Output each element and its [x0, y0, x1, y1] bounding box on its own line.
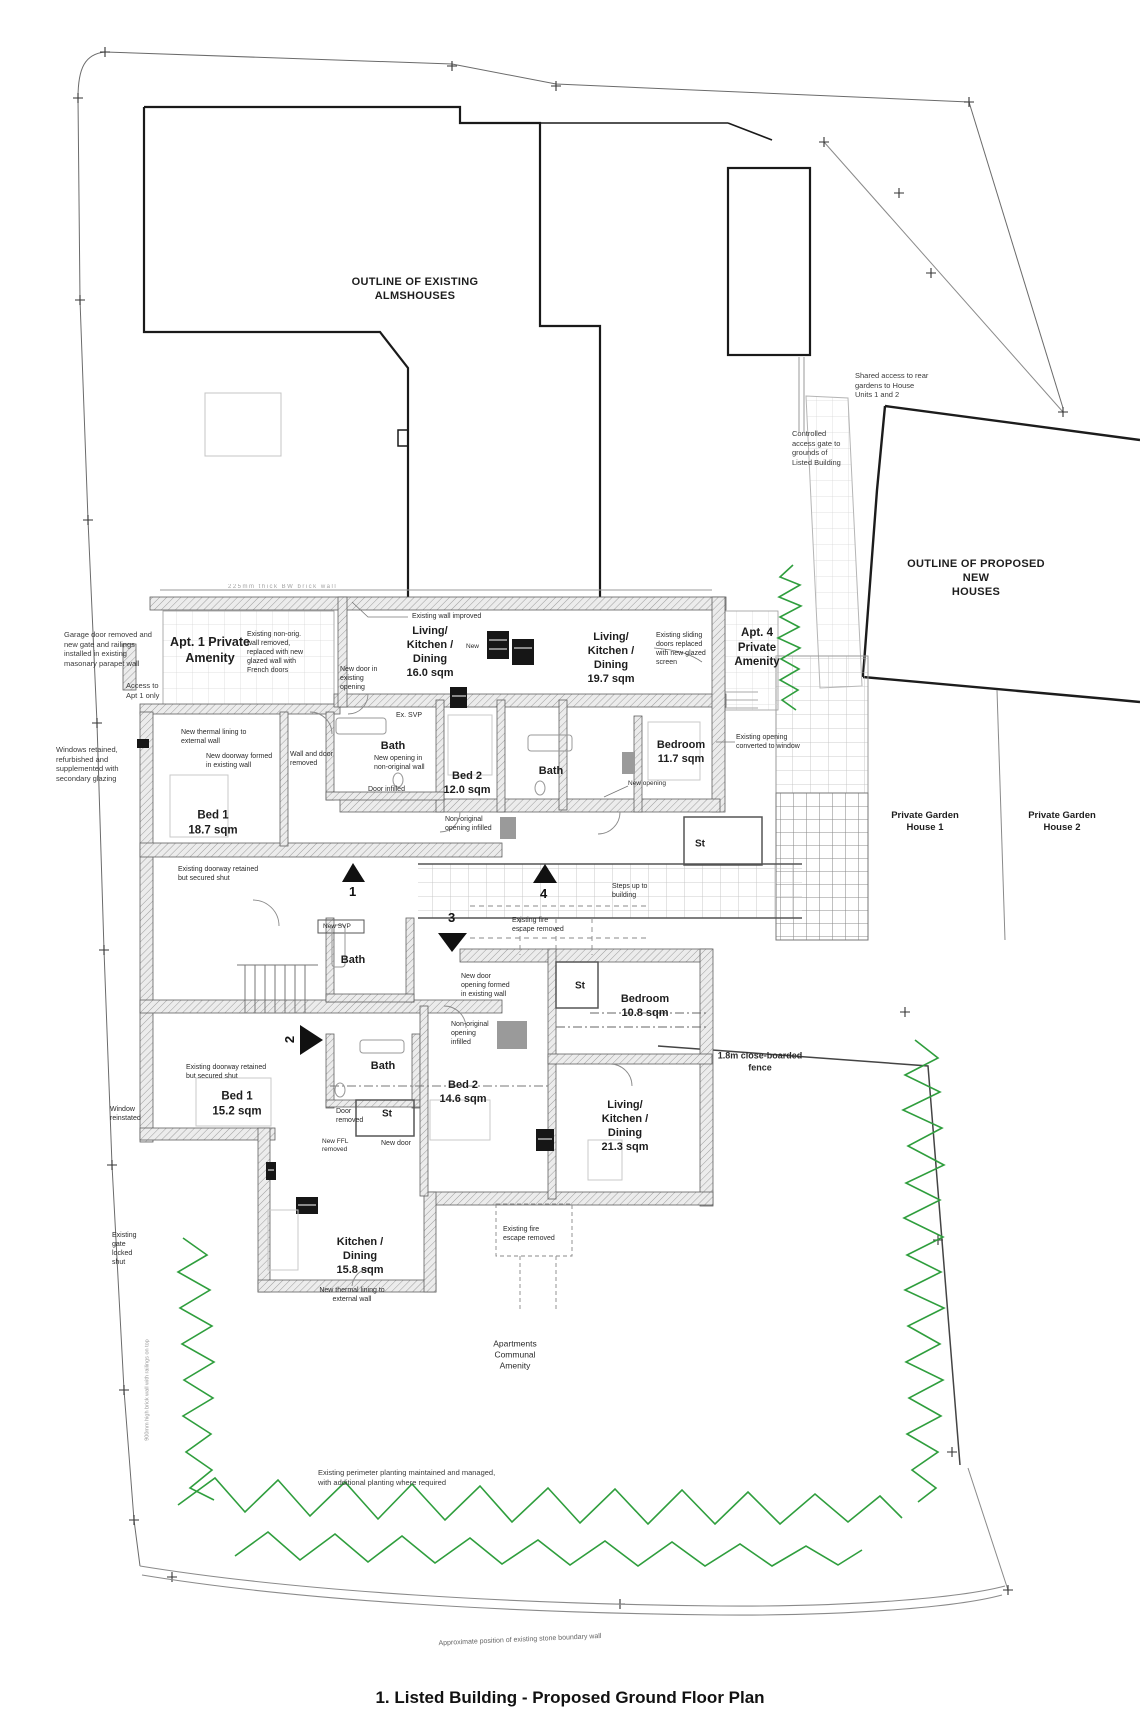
floor-plan-drawing	[0, 0, 1140, 1721]
room-name: Bedroom	[621, 992, 669, 1006]
almshouses-outline	[144, 107, 810, 598]
note-door-infilled: Door infilled	[368, 786, 405, 795]
note-ex-svp: Ex. SVP	[396, 712, 422, 721]
new-houses-outline	[863, 406, 1140, 940]
note-new-door: New door	[381, 1140, 411, 1149]
label-apt1-amenity: Apt. 1 Private Amenity	[170, 634, 250, 666]
note-perimeter-planting: Existing perimeter planting maintained a…	[318, 1468, 495, 1487]
note-nonorig-removed: Existing non-orig. wall removed, replace…	[247, 631, 303, 676]
room-bath-4: Bath	[371, 1059, 395, 1073]
room-name: Bedroom	[657, 738, 705, 752]
note-doorway-retained-low: Existing doorway retained but secured sh…	[186, 1064, 266, 1082]
room-bedroom-108: Bedroom10.8 sqm	[621, 992, 669, 1020]
note-fire-escape-1: Existing fire escape removed	[512, 917, 564, 935]
room-name: Kitchen / Dining	[336, 1235, 383, 1263]
room-name: Bed 2	[439, 1078, 486, 1092]
room-name: Bed 1	[212, 1089, 261, 1104]
room-area: 14.6 sqm	[439, 1092, 486, 1106]
note-nonorig-infilled-2: Non-original opening infilled	[451, 1021, 489, 1048]
note-fire-escape-2: Existing fire escape removed	[503, 1226, 555, 1244]
note-wall-dimension: 225mm thick BW brick wall	[228, 584, 337, 592]
room-bed1-152: Bed 115.2 sqm	[212, 1089, 261, 1118]
note-shared-access: Shared access to rear gardens to House U…	[855, 371, 928, 400]
marker-4: 4	[540, 886, 547, 901]
marker-2: 2	[282, 1036, 297, 1043]
note-nonorig-infilled-1: Non-original opening infilled	[445, 816, 492, 834]
marker-3: 3	[448, 910, 455, 925]
room-bath-3: Bath	[341, 953, 365, 967]
note-thermal-top: New thermal lining to external wall	[181, 729, 246, 747]
marker-1: 1	[349, 884, 356, 899]
room-st-1: St	[695, 839, 705, 852]
note-new-svp: New SVP	[323, 923, 351, 931]
room-bed1-187: Bed 118.7 sqm	[188, 808, 237, 837]
room-area: 19.7 sqm	[587, 672, 634, 686]
label-communal-amenity: Apartments Communal Amenity	[493, 1339, 536, 1372]
room-st-2: St	[575, 981, 585, 994]
room-area: 18.7 sqm	[188, 823, 237, 838]
room-bedroom-117: Bedroom11.7 sqm	[657, 738, 705, 766]
note-controlled-gate: Controlled access gate to grounds of Lis…	[792, 429, 841, 467]
note-new-opening-nonorig: New opening in non-original wall	[374, 755, 425, 773]
room-bed2-12: Bed 212.0 sqm	[443, 769, 490, 797]
almshouse-detail	[205, 393, 281, 456]
label-proposed-new-houses: OUTLINE OF PROPOSED NEW HOUSES	[894, 557, 1058, 599]
room-lkd-16: Living/ Kitchen / Dining16.0 sqm	[406, 624, 453, 680]
note-wall-door-removed: Wall and door removed	[290, 751, 333, 769]
stone-boundary-wall	[140, 1566, 1005, 1615]
label-private-garden-2: Private Garden House 2	[1028, 810, 1096, 834]
drawing-title: 1. Listed Building - Proposed Ground Flo…	[375, 1688, 764, 1708]
note-new-door-opening: New door opening formed in existing wall	[461, 973, 510, 1000]
room-bath-1: Bath	[381, 739, 405, 753]
room-lkd-213: Living/ Kitchen / Dining21.3 sqm	[601, 1098, 648, 1154]
room-bath-2: Bath	[539, 764, 563, 778]
label-apt4-amenity: Apt. 4 Private Amenity	[734, 626, 779, 670]
note-opening-to-window: Existing opening converted to window	[736, 734, 800, 752]
room-name: Living/ Kitchen / Dining	[406, 624, 453, 666]
note-new-door-existing: New door in existing opening	[340, 666, 377, 693]
room-bed2-146: Bed 214.6 sqm	[439, 1078, 486, 1106]
room-name: Living/ Kitchen / Dining	[587, 630, 634, 672]
room-st-3: St	[382, 1109, 392, 1122]
note-window-reinstated: Window reinstated	[110, 1106, 141, 1124]
room-name: Living/ Kitchen / Dining	[601, 1098, 648, 1140]
note-sliding-doors: Existing sliding doors replaced with new…	[656, 632, 706, 668]
note-windows-retained: Windows retained, refurbished and supple…	[56, 745, 119, 783]
note-gate-locked: Existing gate locked shut	[112, 1232, 137, 1268]
note-doorway-retained-top: Existing doorway retained but secured sh…	[178, 866, 258, 884]
room-area: 12.0 sqm	[443, 783, 490, 797]
room-area: 16.0 sqm	[406, 666, 453, 680]
room-area: 15.2 sqm	[212, 1104, 261, 1119]
room-area: 15.8 sqm	[336, 1263, 383, 1277]
room-area: 21.3 sqm	[601, 1140, 648, 1154]
note-access-apt1: Access to Apt 1 only	[126, 681, 159, 700]
note-wall-improved: Existing wall improved	[412, 613, 481, 622]
label-existing-almshouses: OUTLINE OF EXISTING ALMSHOUSES	[352, 275, 479, 303]
label-private-garden-1: Private Garden House 1	[891, 810, 959, 834]
note-left-wall: 900mm high brick wall with railings on t…	[144, 1339, 151, 1441]
room-name: Bed 1	[188, 808, 237, 823]
note-steps-up: Steps up to building	[612, 883, 647, 901]
room-kd-158: Kitchen / Dining15.8 sqm	[336, 1235, 383, 1277]
label-fence: 1.8m close-boarded fence	[718, 1050, 803, 1073]
note-new: New	[466, 643, 479, 651]
room-name: Bed 2	[443, 769, 490, 783]
note-door-removed: Door removed	[336, 1108, 363, 1126]
note-ffl-removed: New FFL removed	[322, 1138, 348, 1155]
room-area: 11.7 sqm	[657, 752, 705, 766]
note-thermal-low: New thermal lining to external wall	[319, 1287, 384, 1305]
note-new-opening: New opening	[628, 780, 666, 788]
note-garage-door: Garage door removed and new gate and rai…	[64, 630, 152, 668]
floor-plan-sheet: OUTLINE OF EXISTING ALMSHOUSES OUTLINE O…	[0, 0, 1140, 1721]
room-lkd-197: Living/ Kitchen / Dining19.7 sqm	[587, 630, 634, 686]
room-area: 10.8 sqm	[621, 1006, 669, 1020]
note-doorway-formed-top: New doorway formed in existing wall	[206, 753, 272, 771]
